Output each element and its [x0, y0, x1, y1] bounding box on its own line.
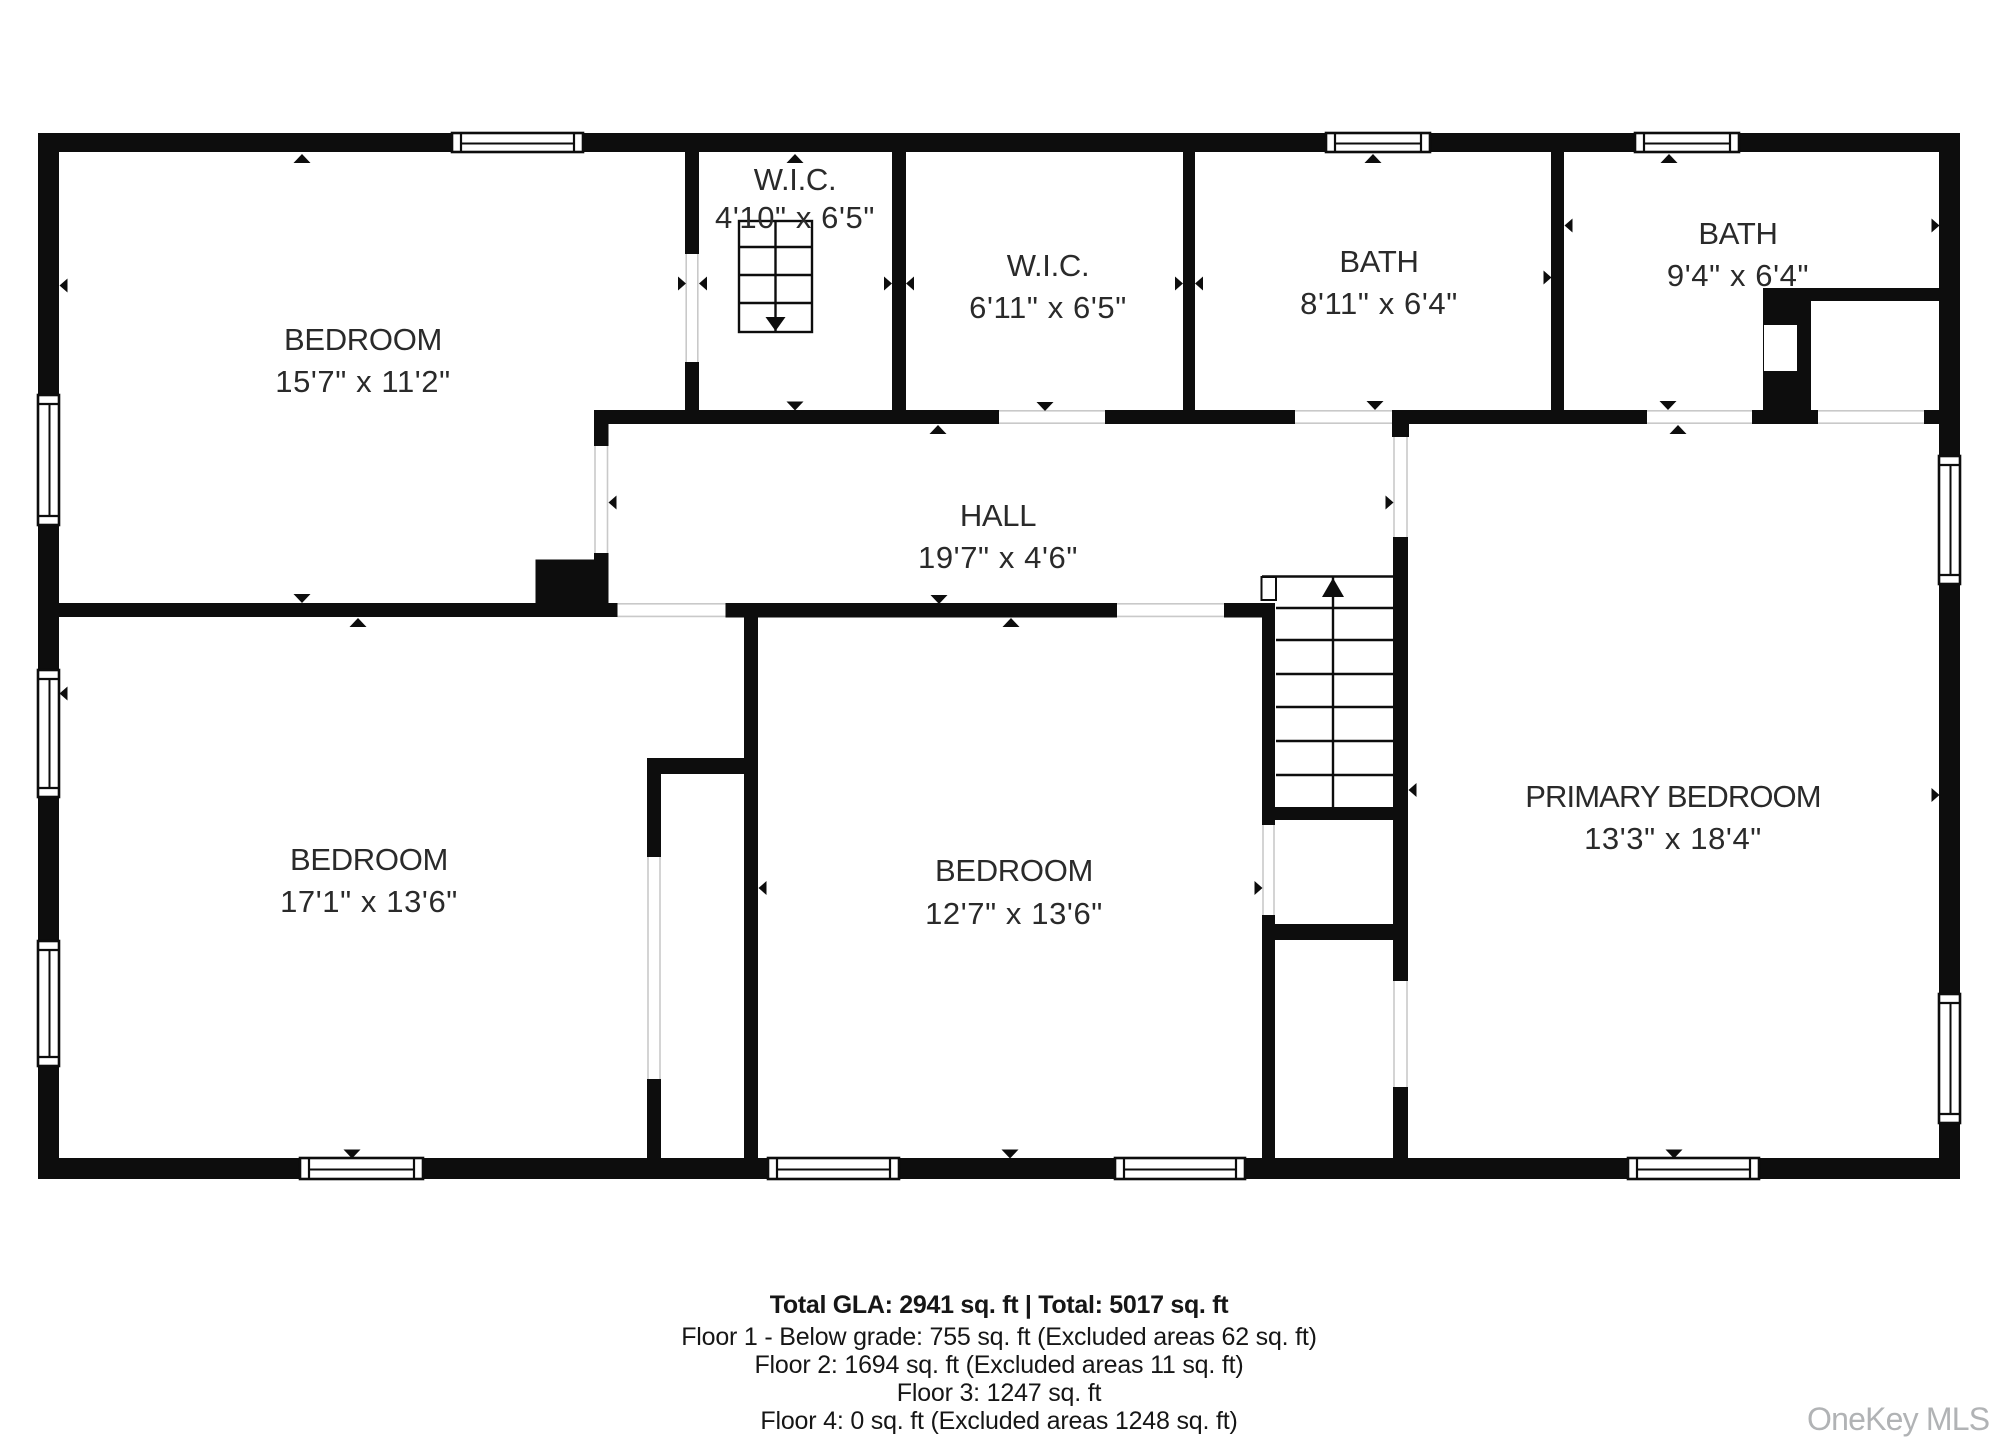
svg-text:Floor 3: 1247 sq. ft: Floor 3: 1247 sq. ft — [897, 1379, 1102, 1407]
svg-text:Floor 1 - Below grade: 755 sq.: Floor 1 - Below grade: 755 sq. ft (Exclu… — [681, 1323, 1317, 1351]
svg-text:9'4" x 6'4": 9'4" x 6'4" — [1667, 258, 1809, 293]
svg-text:Floor 2: 1694 sq. ft (Excluded: Floor 2: 1694 sq. ft (Excluded areas 11 … — [754, 1351, 1243, 1379]
svg-text:17'1" x 13'6": 17'1" x 13'6" — [280, 884, 458, 919]
svg-text:15'7" x 11'2": 15'7" x 11'2" — [275, 364, 451, 399]
svg-text:BEDROOM: BEDROOM — [284, 322, 442, 357]
svg-text:12'7" x 13'6": 12'7" x 13'6" — [925, 896, 1103, 931]
svg-text:BEDROOM: BEDROOM — [935, 853, 1093, 888]
svg-text:BATH: BATH — [1698, 216, 1777, 251]
svg-text:W.I.C.: W.I.C. — [1007, 248, 1090, 283]
svg-text:W.I.C.: W.I.C. — [754, 162, 837, 197]
svg-text:8'11" x 6'4": 8'11" x 6'4" — [1300, 286, 1458, 321]
svg-text:13'3" x 18'4": 13'3" x 18'4" — [1584, 821, 1762, 856]
svg-text:19'7" x 4'6": 19'7" x 4'6" — [918, 540, 1078, 575]
svg-text:Total GLA: 2941 sq. ft | Total: Total GLA: 2941 sq. ft | Total: 5017 sq.… — [770, 1291, 1229, 1319]
svg-text:Floor 4: 0 sq. ft (Excluded ar: Floor 4: 0 sq. ft (Excluded areas 1248 s… — [760, 1407, 1237, 1435]
svg-text:PRIMARY BEDROOM: PRIMARY BEDROOM — [1525, 779, 1820, 814]
svg-text:6'11" x 6'5": 6'11" x 6'5" — [969, 290, 1127, 325]
svg-text:BATH: BATH — [1339, 244, 1418, 279]
svg-text:BEDROOM: BEDROOM — [290, 842, 448, 877]
svg-text:4'10" x 6'5": 4'10" x 6'5" — [715, 200, 875, 235]
svg-text:HALL: HALL — [960, 498, 1036, 533]
svg-text:OneKey MLS: OneKey MLS — [1807, 1401, 1989, 1437]
